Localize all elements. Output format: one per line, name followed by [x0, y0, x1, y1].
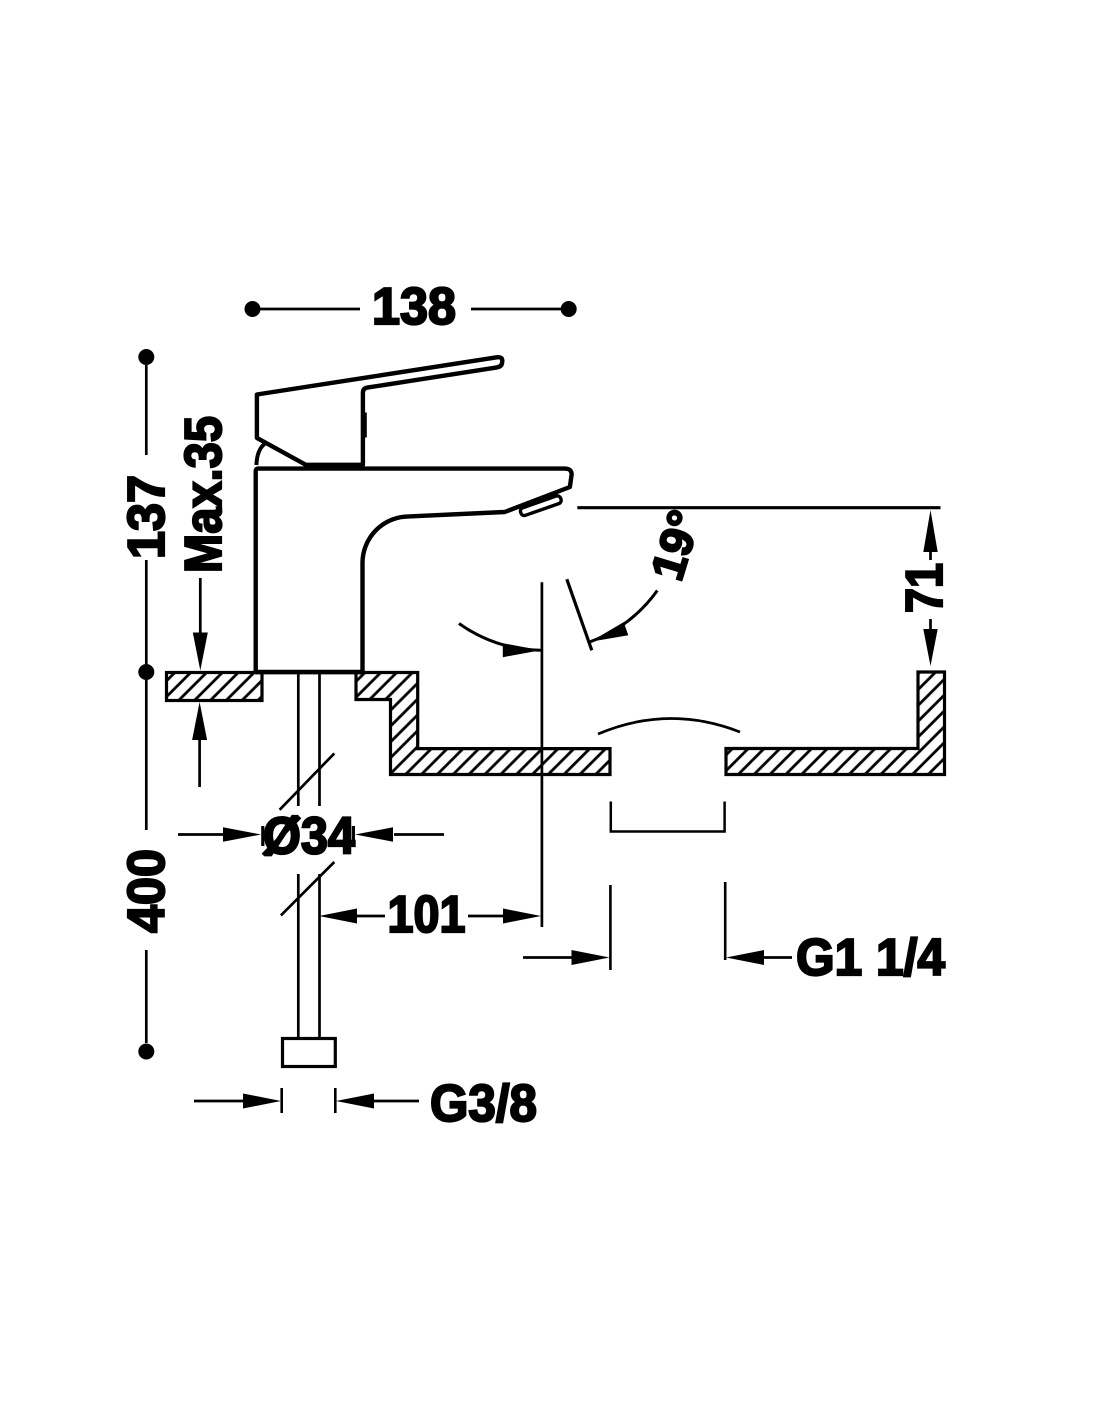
svg-text:Max.35: Max.35 [175, 416, 233, 573]
svg-text:71: 71 [896, 563, 954, 613]
svg-text:G1 1/4: G1 1/4 [796, 929, 945, 987]
svg-text:101: 101 [388, 886, 466, 944]
svg-text:137: 137 [118, 475, 176, 559]
svg-text:G3/8: G3/8 [430, 1075, 537, 1133]
svg-text:138: 138 [372, 278, 456, 336]
svg-text:400: 400 [118, 849, 176, 933]
svg-text:Ø34: Ø34 [263, 808, 355, 866]
